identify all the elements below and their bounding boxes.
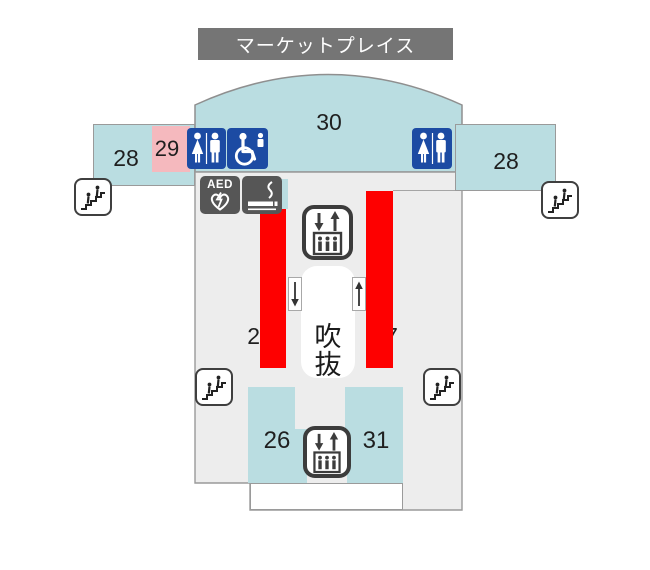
down-arrow-glyph bbox=[289, 279, 301, 309]
floor-map: マーケットプレイス 28 29 30 28 2 7 bbox=[0, 0, 650, 570]
highlight-bar-left bbox=[260, 191, 286, 368]
aed-label: AED bbox=[207, 180, 233, 192]
south-corridor bbox=[295, 387, 345, 429]
aed-icon: AED bbox=[200, 176, 240, 214]
escalator-glyph bbox=[78, 182, 108, 212]
escalator-icon bbox=[423, 368, 461, 406]
smoking-area-icon bbox=[242, 176, 282, 214]
zone-divider-line bbox=[393, 190, 462, 191]
aed-heart-glyph bbox=[206, 191, 234, 212]
up-arrow-icon bbox=[352, 277, 366, 311]
highlight-bar-right bbox=[366, 191, 393, 368]
south-annex bbox=[250, 483, 403, 510]
up-arrow-glyph bbox=[353, 279, 365, 309]
elevator-glyph bbox=[306, 209, 349, 256]
elevator-icon bbox=[302, 205, 353, 260]
area-label-30: 30 bbox=[309, 111, 349, 134]
restroom-glyph bbox=[413, 128, 452, 169]
area-label-28-left: 28 bbox=[110, 147, 142, 170]
restroom-icon bbox=[412, 128, 452, 169]
area-label-31: 31 bbox=[356, 429, 396, 453]
wheelchair-glyph bbox=[227, 128, 268, 169]
smoking-glyph bbox=[242, 176, 282, 214]
elevator-icon bbox=[303, 426, 351, 478]
area-label-29: 29 bbox=[151, 138, 183, 160]
wheelchair-accessible-icon bbox=[227, 128, 268, 169]
escalator-icon bbox=[541, 181, 579, 219]
area-label-28-right: 28 bbox=[490, 150, 522, 173]
atrium-label: 吹抜 bbox=[313, 323, 343, 379]
restroom-icon bbox=[187, 128, 226, 169]
map-title: マーケットプレイス bbox=[236, 31, 415, 58]
escalator-glyph bbox=[427, 372, 457, 402]
area-label-26: 26 bbox=[257, 429, 297, 453]
escalator-icon bbox=[195, 368, 233, 406]
escalator-glyph bbox=[545, 185, 575, 215]
escalator-icon bbox=[74, 178, 112, 216]
restroom-glyph bbox=[187, 128, 226, 169]
map-title-banner: マーケットプレイス bbox=[198, 28, 453, 60]
shop-label-west: 2 bbox=[236, 325, 260, 348]
down-arrow-icon bbox=[288, 277, 302, 311]
escalator-glyph bbox=[199, 372, 229, 402]
elevator-glyph bbox=[307, 430, 347, 474]
